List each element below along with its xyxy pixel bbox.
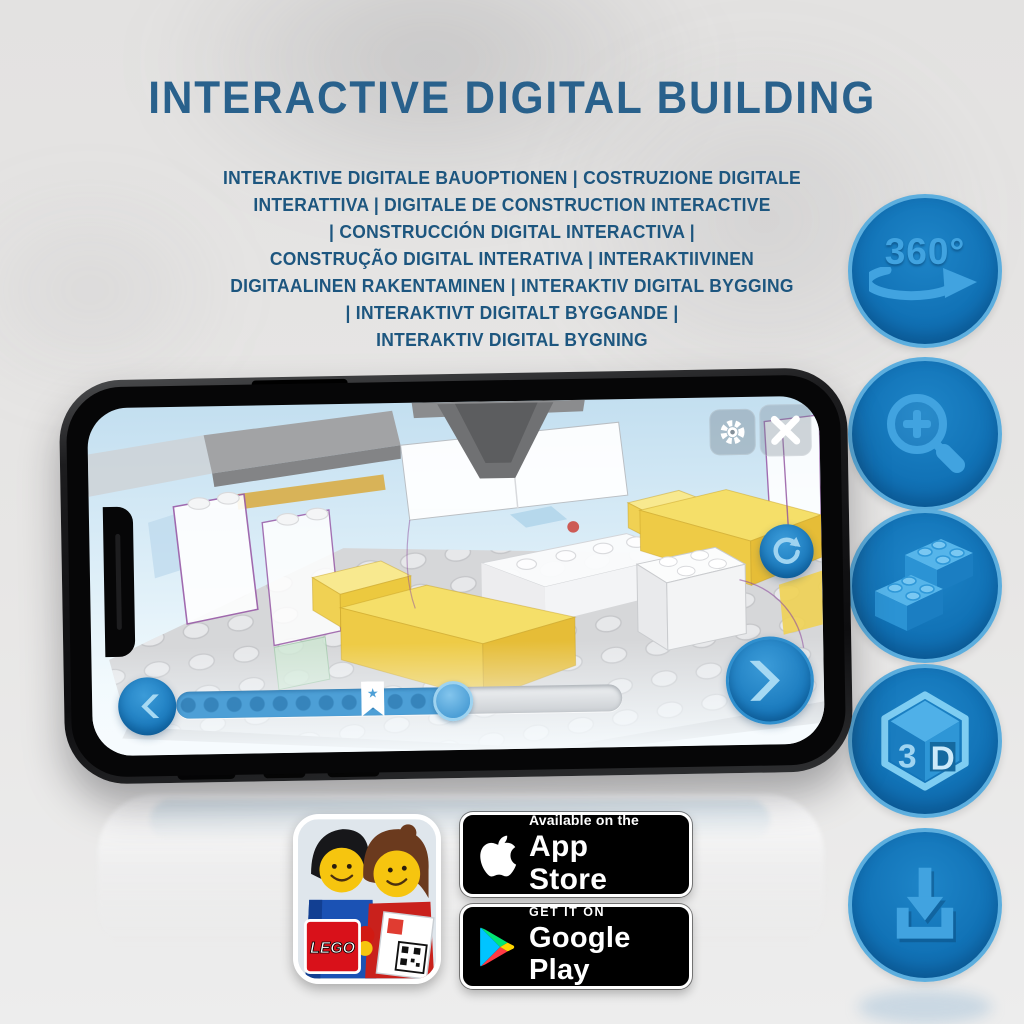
lego-app-artwork: LEGO (298, 819, 436, 979)
marketing-page: INTERACTIVE DIGITAL BUILDING INTERAKTIVE… (0, 0, 1024, 1024)
translation-line: INTERATTIVA | DIGITALE DE CONSTRUCTION I… (15, 192, 1008, 219)
rotate-icon (770, 535, 803, 568)
translation-line: | CONSTRUCCIÓN DIGITAL INTERACTIVA | (15, 219, 1008, 246)
translation-line: INTERAKTIV DIGITAL BYGNING (15, 327, 1008, 354)
close-icon (770, 415, 801, 446)
gear-icon (717, 417, 748, 448)
app-store-tagline: Available on the (529, 813, 675, 828)
app-store-badge[interactable]: Available on the App Store (460, 812, 692, 897)
phone-bezel: ★ (66, 374, 847, 777)
google-play-tagline: GET IT ON (529, 906, 675, 920)
3d-cube-icon: 3 D (871, 687, 979, 795)
page-title-text: INTERACTIVE DIGITAL BUILDING (148, 72, 876, 124)
translation-line: CONSTRUÇÃO DIGITAL INTERATIVA | INTERAKT… (15, 246, 1008, 273)
settings-button[interactable] (709, 409, 756, 456)
google-play-title: Google Play (529, 923, 675, 987)
close-button[interactable] (759, 404, 812, 457)
translation-line: | INTERAKTIVT DIGITALT BYGGANDE | (15, 300, 1008, 327)
phone-mockup: ★ (59, 367, 854, 785)
translations-block: INTERAKTIVE DIGITALE BAUOPTIONEN | COSTR… (0, 165, 1024, 354)
chevron-right-icon (747, 656, 792, 705)
zoom-in-icon (877, 386, 973, 482)
slider-fill (176, 687, 453, 719)
3d-right-glyph: D (931, 740, 955, 777)
3d-left-glyph: 3 (898, 739, 917, 776)
lego-app-icon[interactable]: LEGO (293, 814, 441, 984)
chevron-left-icon (134, 691, 161, 721)
download-icon (873, 855, 977, 955)
google-play-icon (477, 925, 517, 969)
feature-brick-badge (848, 509, 1002, 663)
google-play-badge[interactable]: GET IT ON Google Play (460, 904, 692, 989)
page-title: INTERACTIVE DIGITAL BUILDING (0, 72, 1024, 124)
brick-icon (869, 533, 981, 639)
lego-logo: LEGO (305, 920, 359, 972)
feature-3d-badge: 3 D (848, 664, 1002, 818)
translation-line: DIGITAALINEN RAKENTAMINEN | INTERAKTIV D… (15, 273, 1008, 300)
apple-icon (477, 831, 517, 879)
app-store-title: App Store (529, 830, 675, 896)
feature-zoom-badge (848, 357, 1002, 511)
translation-line: INTERAKTIVE DIGITALE BAUOPTIONEN | COSTR… (15, 165, 1008, 192)
badge-reflection (858, 990, 992, 1024)
app-screen: ★ (87, 396, 825, 757)
lego-logo-text: LEGO (310, 940, 356, 957)
feature-download-badge (848, 828, 1002, 982)
